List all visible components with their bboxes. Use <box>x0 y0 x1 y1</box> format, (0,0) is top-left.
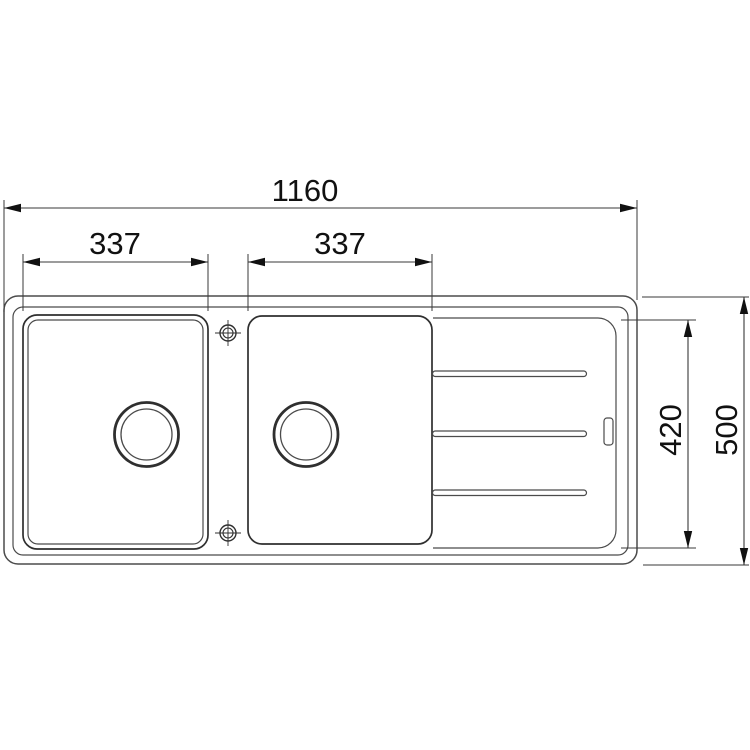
left-drain-outlet-rim <box>115 403 179 467</box>
middle-drain-outlet-rim <box>274 403 338 467</box>
dim-inner-depth: 420 <box>621 320 696 548</box>
middle-bowl <box>248 316 432 544</box>
tap-hole-bottom <box>215 520 241 546</box>
left-drain-outlet <box>121 409 172 460</box>
dim-label-overall-depth: 500 <box>709 404 744 456</box>
drainer-groove <box>433 490 587 496</box>
middle-drain-outlet <box>281 409 332 460</box>
dim-label-overall-width: 1160 <box>272 173 339 208</box>
drainer-groove <box>433 431 587 437</box>
sink-outer-edge <box>4 296 637 564</box>
dim-label-inner-depth: 420 <box>653 404 688 456</box>
dim-right-bowl-width: 337 <box>248 226 432 311</box>
left-bowl <box>23 315 208 549</box>
dim-label-left-bowl-width: 337 <box>89 226 141 261</box>
sink-technical-drawing: 1160 337 337 420 500 <box>0 0 750 750</box>
drawing-canvas: 1160 337 337 420 500 <box>0 0 750 750</box>
dim-label-right-bowl-width: 337 <box>314 226 366 261</box>
dim-left-bowl-width: 337 <box>23 226 208 311</box>
overflow-slot <box>604 418 613 445</box>
drainer-panel-edge <box>433 318 616 548</box>
tap-hole-top <box>215 320 241 346</box>
drainer-groove <box>433 371 587 377</box>
drainer-area <box>433 318 617 548</box>
